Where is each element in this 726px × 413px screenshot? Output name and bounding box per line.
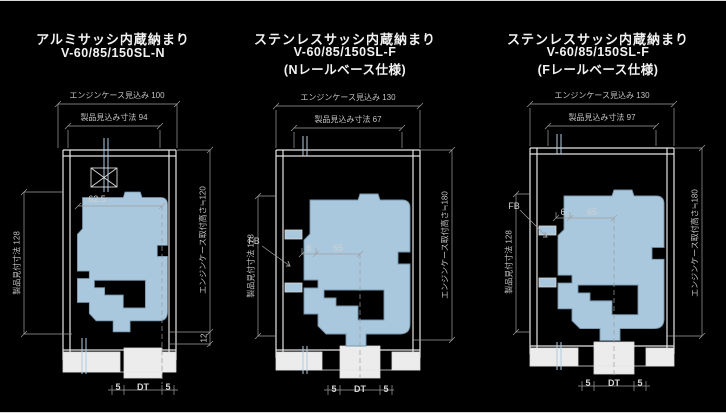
- diagram3-product-depth-dim: 製品見込み寸法 97: [568, 112, 635, 123]
- diagram2-product-depth-dim: 製品見込み寸法 67: [314, 114, 381, 125]
- diagram2-sill-section: [276, 346, 420, 378]
- diagram2-case-depth-dim: エンジンケース見込み 130: [300, 92, 395, 103]
- diagram3-fb-label: FB: [508, 201, 520, 211]
- diagram1-sill-left-dim: 5: [115, 382, 120, 392]
- diagram1-drawing: [21, 101, 213, 395]
- diagram3-case-depth-dim: エンジンケース見込み 130: [554, 90, 649, 101]
- diagram3-fb-leader-line: [520, 210, 547, 237]
- diagram2-fb-label: FB: [248, 236, 260, 246]
- diagram1-product-face-dim: 製品見付寸法 128: [12, 231, 23, 295]
- diagram2-gap-dim-value: 6: [306, 243, 311, 253]
- diagram3-product-face-dim: 製品見付寸法 128: [504, 230, 515, 294]
- diagram1-sill-right-dim: 5: [165, 382, 170, 392]
- diagram1-case-height-dim: エンジンケース取付高さ≒120: [198, 186, 209, 294]
- diagram2-drawing: [255, 103, 455, 395]
- diagram3-sill-right-dim: 5: [637, 378, 642, 388]
- diagram3-model: V-60/85/150SL-F: [547, 45, 650, 59]
- diagram2-head-section: [276, 150, 420, 156]
- diagram3-fb-bolts: [539, 226, 556, 287]
- diagram3-sill-center-dim: DT: [608, 378, 620, 388]
- diagram3-head-section: [530, 148, 674, 154]
- diagram2-rail-spec: (Nレールベース仕様): [284, 59, 406, 78]
- diagram2-mechanism-case-section: [304, 194, 410, 346]
- diagram1-bottom-rail: [124, 348, 162, 378]
- technical-drawing-canvas: アルミサッシ内蔵納まり V-60/85/150SL-N エンジンケース見込み 1…: [0, 0, 726, 413]
- diagram1-offset-dim-value: 12: [200, 334, 209, 343]
- diagram2-sill-right-dim: 5: [383, 384, 388, 394]
- diagram3-sill-left-dim: 5: [585, 378, 590, 388]
- diagram1-sill-center-dim: DT: [137, 382, 149, 392]
- diagram1-head-section: [63, 150, 176, 156]
- diagram2-model: V-60/85/150SL-F: [294, 45, 397, 59]
- diagram1-inner-dim-value: 62.5: [88, 194, 106, 204]
- diagram1-product-depth-dim: 製品見込み寸法 94: [80, 112, 147, 123]
- diagram3-sill-section: [530, 342, 674, 374]
- diagram2-inner-dim-value: 65: [333, 243, 343, 253]
- diagram2-sill-center-dim: DT: [354, 384, 366, 394]
- diagram1-mechanism-case-section: [77, 192, 167, 332]
- diagram2-fb-bolts: [285, 230, 302, 292]
- diagram2-case-height-dim: エンジンケース取付高さ≒180: [440, 191, 451, 299]
- diagram3-mechanism-case-section: [558, 190, 664, 340]
- diagram3-case-height-dim: エンジンケース取付高さ≒180: [690, 189, 701, 297]
- diagram1-sill-section: [63, 348, 176, 378]
- diagram1-model: V-60/85/150SL-N: [61, 46, 165, 60]
- diagram3-inner-dim-value: 65: [587, 207, 597, 217]
- diagram2-sill-left-dim: 5: [331, 384, 336, 394]
- diagram3-rail-spec: (Fレールベース仕様): [538, 59, 659, 78]
- diagram3-gap-dim-value: 6: [560, 207, 565, 217]
- diagram1-case-depth-dim: エンジンケース見込み 100: [69, 90, 164, 101]
- diagram3-drawing: [513, 101, 705, 391]
